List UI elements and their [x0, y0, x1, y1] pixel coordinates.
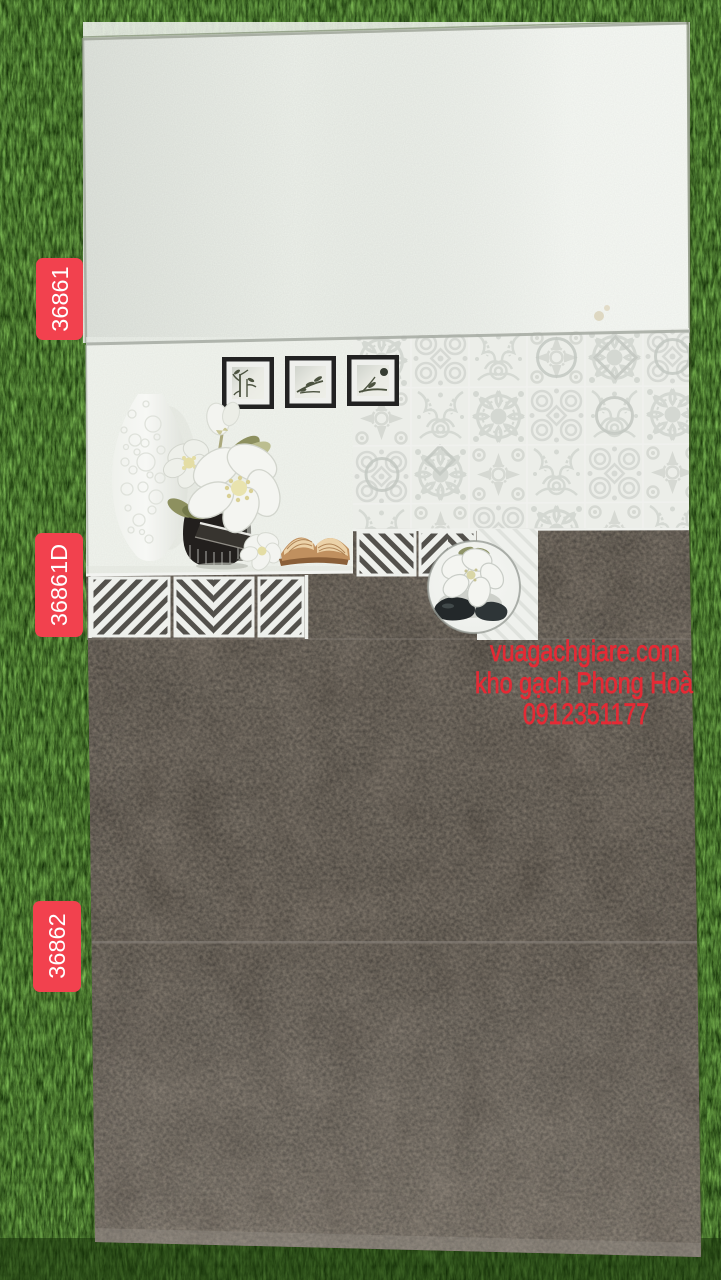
svg-text:36862: 36862: [44, 913, 70, 978]
svg-text:vuagachgiare.com: vuagachgiare.com: [490, 635, 680, 668]
svg-text:36861D: 36861D: [46, 544, 72, 626]
svg-text:36861: 36861: [47, 266, 73, 331]
svg-text:kho gạch Phong Hoà: kho gạch Phong Hoà: [475, 667, 693, 700]
svg-text:0912351177: 0912351177: [523, 698, 649, 731]
